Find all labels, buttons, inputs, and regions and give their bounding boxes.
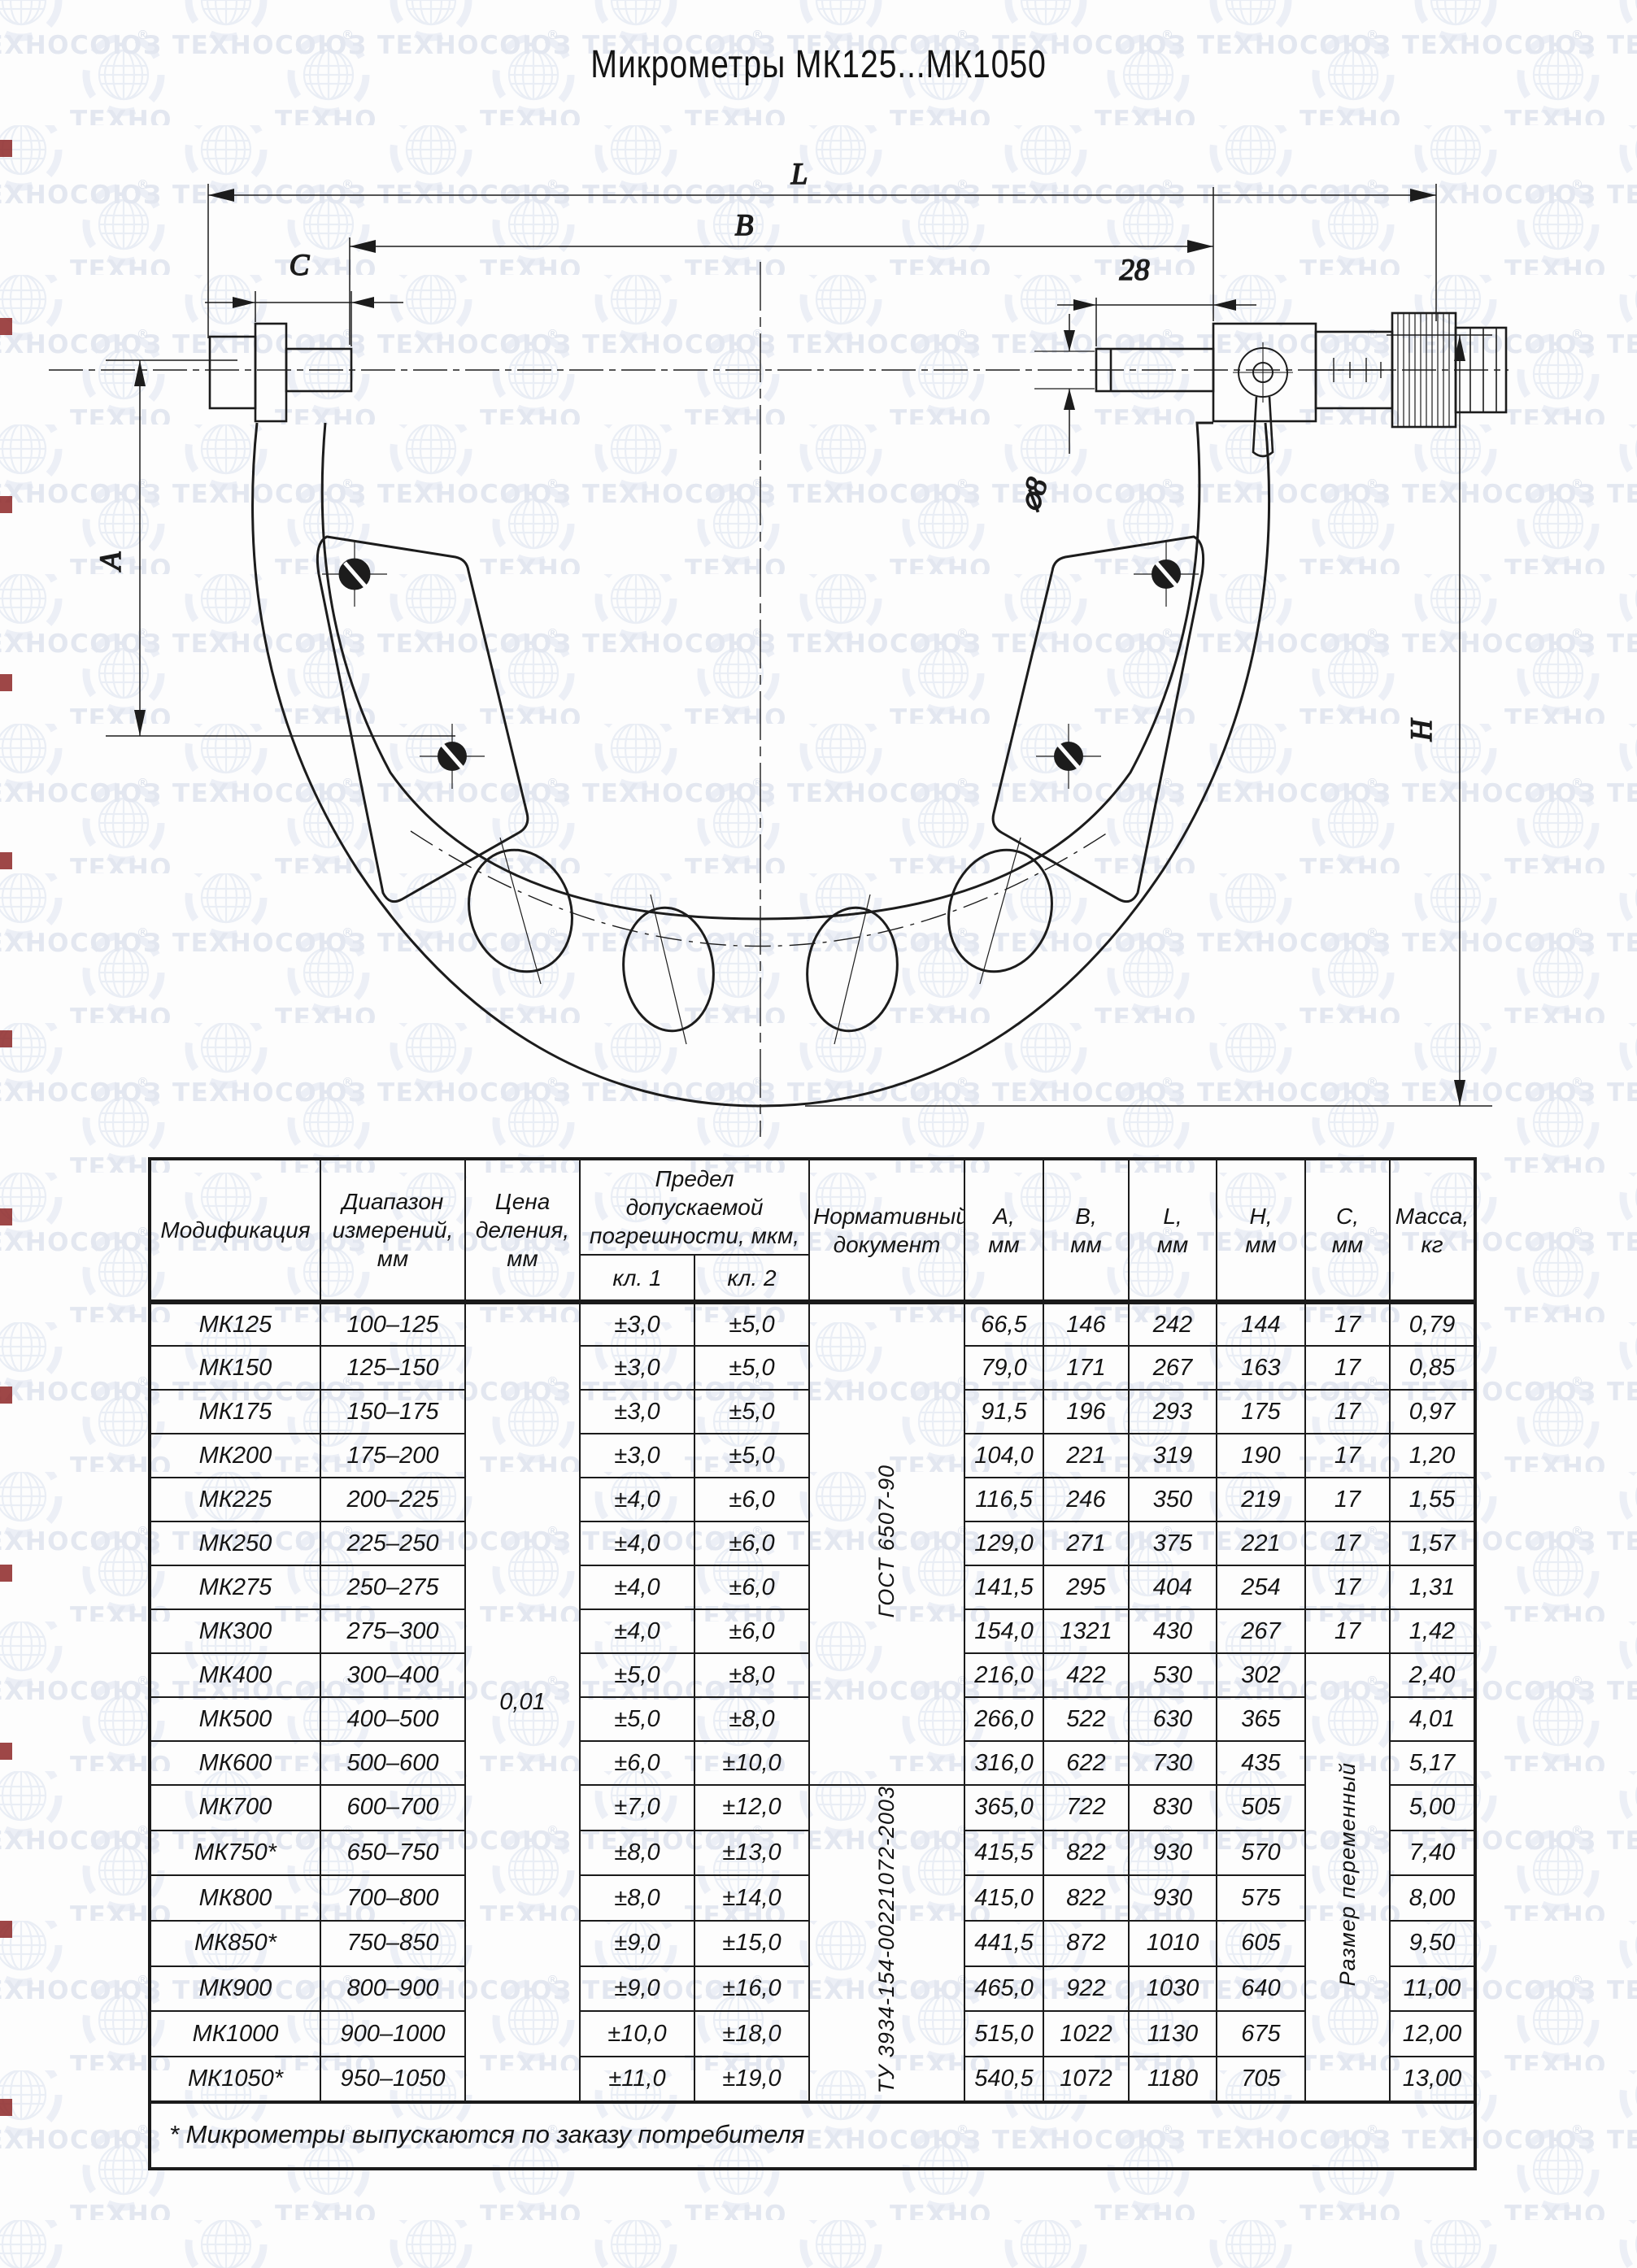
table-cell: 800–900 xyxy=(320,1966,465,2012)
table-cell: ±3,0 xyxy=(580,1390,694,1434)
table-cell: 622 xyxy=(1043,1741,1129,1785)
table-cell: 316,0 xyxy=(964,1741,1043,1785)
table-cell: 435 xyxy=(1217,1741,1305,1785)
table-cell: 219 xyxy=(1217,1478,1305,1521)
table-cell: МК1050* xyxy=(150,2057,320,2102)
table-cell: 822 xyxy=(1043,1875,1129,1921)
table-cell: МК200 xyxy=(150,1434,320,1478)
table-cell: 1022 xyxy=(1043,2011,1129,2057)
table-cell: 1,20 xyxy=(1390,1434,1475,1478)
edge-mark xyxy=(0,1921,12,1938)
table-cell: ±15,0 xyxy=(694,1921,809,1966)
table-cell: 5,00 xyxy=(1390,1785,1475,1831)
table-cell: 930 xyxy=(1129,1831,1217,1876)
table-cell: 0,79 xyxy=(1390,1302,1475,1346)
c-variable-text: Размер переменный xyxy=(1335,1762,1361,1986)
table-cell: 17 xyxy=(1305,1302,1390,1346)
svg-text:L: L xyxy=(790,158,808,191)
table-cell: ±4,0 xyxy=(580,1609,694,1653)
table-cell: МК1000 xyxy=(150,2011,320,2057)
table-cell: 66,5 xyxy=(964,1302,1043,1346)
table-cell: 267 xyxy=(1217,1609,1305,1653)
table-cell: ±6,0 xyxy=(694,1478,809,1521)
table-cell: 1,55 xyxy=(1390,1478,1475,1521)
table-cell: 0,97 xyxy=(1390,1390,1475,1434)
col-header-norm-doc: Нормативный документ xyxy=(809,1159,964,1302)
table-cell: 730 xyxy=(1129,1741,1217,1785)
col-header-a: А, мм xyxy=(964,1159,1043,1302)
svg-text:⌀8: ⌀8 xyxy=(1012,473,1055,516)
table-cell: ±4,0 xyxy=(580,1565,694,1609)
table-cell: ±14,0 xyxy=(694,1875,809,1921)
table-cell: 302 xyxy=(1217,1653,1305,1697)
table-cell: 465,0 xyxy=(964,1966,1043,2012)
table-cell: МК225 xyxy=(150,1478,320,1521)
table-cell: 242 xyxy=(1129,1302,1217,1346)
table-cell: 91,5 xyxy=(964,1390,1043,1434)
table-cell: ±4,0 xyxy=(580,1478,694,1521)
table-cell: 1,42 xyxy=(1390,1609,1475,1653)
col-header-cl1: кл. 1 xyxy=(580,1255,694,1302)
table-cell: 1010 xyxy=(1129,1921,1217,1966)
dimension-dia8: ⌀8 xyxy=(1012,314,1095,516)
table-cell: 295 xyxy=(1043,1565,1129,1609)
edge-mark xyxy=(0,1565,12,1582)
table-cell: 515,0 xyxy=(964,2011,1043,2057)
table-cell: 950–1050 xyxy=(320,2057,465,2102)
svg-text:28: 28 xyxy=(1120,254,1151,287)
svg-text:A: A xyxy=(94,551,128,572)
table-cell: 522 xyxy=(1043,1697,1129,1741)
dimension-28: 28 xyxy=(1057,254,1256,346)
table-cell: ±6,0 xyxy=(694,1609,809,1653)
table-cell: 1,57 xyxy=(1390,1521,1475,1565)
table-cell: 13,00 xyxy=(1390,2057,1475,2102)
insulating-plate-left xyxy=(317,537,528,902)
col-header-mass: Масса, кг xyxy=(1390,1159,1475,1302)
table-cell: 830 xyxy=(1129,1785,1217,1831)
table-cell: 540,5 xyxy=(964,2057,1043,2102)
table-cell: 200–225 xyxy=(320,1478,465,1521)
table-cell: 246 xyxy=(1043,1478,1129,1521)
col-header-b: В, мм xyxy=(1043,1159,1129,1302)
table-cell: 900–1000 xyxy=(320,2011,465,2057)
table-cell: 221 xyxy=(1217,1521,1305,1565)
table-cell: 575 xyxy=(1217,1875,1305,1921)
table-header: Модификация Диапазон измерений, мм Цена … xyxy=(150,1159,1475,1302)
table-cell: 17 xyxy=(1305,1346,1390,1390)
table-cell: 300–400 xyxy=(320,1653,465,1697)
centerlines xyxy=(49,262,1509,1137)
table-cell: 254 xyxy=(1217,1565,1305,1609)
table-cell: 146 xyxy=(1043,1302,1129,1346)
table-cell: 196 xyxy=(1043,1390,1129,1434)
table-cell: 225–250 xyxy=(320,1521,465,1565)
c-variable-cell: Размер переменный xyxy=(1305,1653,1390,2102)
edge-mark xyxy=(0,140,12,157)
table-cell: 430 xyxy=(1129,1609,1217,1653)
edge-mark xyxy=(0,1208,12,1225)
table-cell: 600–700 xyxy=(320,1785,465,1831)
table-cell: 415,5 xyxy=(964,1831,1043,1876)
dimension-H: Н xyxy=(805,335,1492,1106)
table-cell: 1321 xyxy=(1043,1609,1129,1653)
table-cell: 79,0 xyxy=(964,1346,1043,1390)
table-cell: 221 xyxy=(1043,1434,1129,1478)
table-cell: 705 xyxy=(1217,2057,1305,2102)
table-cell: 640 xyxy=(1217,1966,1305,2012)
table-cell: 422 xyxy=(1043,1653,1129,1697)
table-cell: 365 xyxy=(1217,1697,1305,1741)
table-cell: 365,0 xyxy=(964,1785,1043,1831)
table-cell: 144 xyxy=(1217,1302,1305,1346)
table-cell: ±3,0 xyxy=(580,1434,694,1478)
table-cell: 5,17 xyxy=(1390,1741,1475,1785)
table-cell: ±5,0 xyxy=(580,1653,694,1697)
table-cell: ±5,0 xyxy=(694,1434,809,1478)
table-cell: 275–300 xyxy=(320,1609,465,1653)
table-cell: 141,5 xyxy=(964,1565,1043,1609)
micrometer-drawing: L B C 28 xyxy=(0,89,1637,1155)
table-cell: ±12,0 xyxy=(694,1785,809,1831)
table-cell: 375 xyxy=(1129,1521,1217,1565)
table-cell: ±6,0 xyxy=(694,1565,809,1609)
table-cell: ±4,0 xyxy=(580,1521,694,1565)
table-cell: 2,40 xyxy=(1390,1653,1475,1697)
edge-mark xyxy=(0,1386,12,1404)
table-cell: ±11,0 xyxy=(580,2057,694,2102)
table-cell: ±6,0 xyxy=(580,1741,694,1785)
table-cell: 750–850 xyxy=(320,1921,465,1966)
table-cell: 700–800 xyxy=(320,1875,465,1921)
edge-mark xyxy=(0,496,12,513)
svg-text:B: B xyxy=(735,209,754,242)
table-cell: 116,5 xyxy=(964,1478,1043,1521)
table-cell: 1072 xyxy=(1043,2057,1129,2102)
table-cell: ±10,0 xyxy=(580,2011,694,2057)
table-cell: МК750* xyxy=(150,1831,320,1876)
table-cell: 17 xyxy=(1305,1478,1390,1521)
table-cell: МК800 xyxy=(150,1875,320,1921)
dimension-C: C xyxy=(205,249,403,346)
table-cell: ±9,0 xyxy=(580,1966,694,2012)
table-cell: 171 xyxy=(1043,1346,1129,1390)
table-cell: ±5,0 xyxy=(694,1346,809,1390)
table-cell: ±3,0 xyxy=(580,1302,694,1346)
table-cell: 722 xyxy=(1043,1785,1129,1831)
spec-table: Модификация Диапазон измерений, мм Цена … xyxy=(148,1157,1477,2170)
table-cell: МК500 xyxy=(150,1697,320,1741)
table-cell: 11,00 xyxy=(1390,1966,1475,2012)
table-cell: ±5,0 xyxy=(580,1697,694,1741)
table-cell: 0,01 xyxy=(465,1302,580,2102)
table-cell: ±9,0 xyxy=(580,1921,694,1966)
table-cell: МК850* xyxy=(150,1921,320,1966)
table-cell: 175 xyxy=(1217,1390,1305,1434)
table-cell: 12,00 xyxy=(1390,2011,1475,2057)
table-cell: 17 xyxy=(1305,1434,1390,1478)
table-cell: ±10,0 xyxy=(694,1741,809,1785)
table-cell: 266,0 xyxy=(964,1697,1043,1741)
table-cell: 7,40 xyxy=(1390,1831,1475,1876)
table-cell: МК175 xyxy=(150,1390,320,1434)
footnote-row: * Микрометры выпускаются по заказу потре… xyxy=(150,2102,1475,2169)
table-row: МК700600–700±7,0±12,0ТУ 3934-154-0022107… xyxy=(150,1785,1475,1831)
table-cell: 4,01 xyxy=(1390,1697,1475,1741)
edge-mark xyxy=(0,1743,12,1760)
table-cell: 404 xyxy=(1129,1565,1217,1609)
table-cell: ±8,0 xyxy=(694,1653,809,1697)
table-cell: 872 xyxy=(1043,1921,1129,1966)
table-cell: МК400 xyxy=(150,1653,320,1697)
table-cell: ±8,0 xyxy=(580,1831,694,1876)
table-cell: 100–125 xyxy=(320,1302,465,1346)
table-cell: МК250 xyxy=(150,1521,320,1565)
table-cell: 190 xyxy=(1217,1434,1305,1478)
table-cell: 570 xyxy=(1217,1831,1305,1876)
table-cell: 175–200 xyxy=(320,1434,465,1478)
table-cell: МК275 xyxy=(150,1565,320,1609)
edge-mark xyxy=(0,2099,12,2116)
table-cell: ±8,0 xyxy=(694,1697,809,1741)
col-header-error-limit: Предел допускаемой погрешности, мкм, xyxy=(580,1159,809,1255)
table-cell: МК125 xyxy=(150,1302,320,1346)
table-cell: 530 xyxy=(1129,1653,1217,1697)
table-row: МК125100–1250,01±3,0±5,0ГОСТ 6507-9066,5… xyxy=(150,1302,1475,1346)
table-cell: ±16,0 xyxy=(694,1966,809,2012)
table-cell: 630 xyxy=(1129,1697,1217,1741)
table-cell: 17 xyxy=(1305,1609,1390,1653)
table-cell: 500–600 xyxy=(320,1741,465,1785)
table-cell: ±19,0 xyxy=(694,2057,809,2102)
table-cell: ±13,0 xyxy=(694,1831,809,1876)
table-body: МК125100–1250,01±3,0±5,0ГОСТ 6507-9066,5… xyxy=(150,1302,1475,2102)
col-header-cl2: кл. 2 xyxy=(694,1255,809,1302)
edge-mark xyxy=(0,318,12,335)
table-cell: 319 xyxy=(1129,1434,1217,1478)
table-cell: 154,0 xyxy=(964,1609,1043,1653)
dimension-B: B xyxy=(350,187,1213,345)
table-cell: 1,31 xyxy=(1390,1565,1475,1609)
table-cell: 1030 xyxy=(1129,1966,1217,2012)
table-cell: 9,50 xyxy=(1390,1921,1475,1966)
table-cell: 271 xyxy=(1043,1521,1129,1565)
table-cell: 8,00 xyxy=(1390,1875,1475,1921)
table-cell: МК600 xyxy=(150,1741,320,1785)
norm-doc-text: ГОСТ 6507-90 xyxy=(874,1465,899,1617)
footnote: * Микрометры выпускаются по заказу потре… xyxy=(150,2102,1475,2169)
table-cell: 17 xyxy=(1305,1521,1390,1565)
norm-doc-cell: ГОСТ 6507-90 xyxy=(809,1302,964,1785)
col-header-h: Н, мм xyxy=(1217,1159,1305,1302)
insulating-plate-right xyxy=(993,537,1204,902)
table-cell: 17 xyxy=(1305,1565,1390,1609)
table-cell: 0,85 xyxy=(1390,1346,1475,1390)
table-cell: ±5,0 xyxy=(694,1302,809,1346)
table-cell: 150–175 xyxy=(320,1390,465,1434)
dimension-L: L xyxy=(208,158,1436,338)
table-cell: ±8,0 xyxy=(580,1875,694,1921)
table-cell: 415,0 xyxy=(964,1875,1043,1921)
col-header-l: L, мм xyxy=(1129,1159,1217,1302)
table-cell: 125–150 xyxy=(320,1346,465,1390)
table-cell: 922 xyxy=(1043,1966,1129,2012)
table-cell: 1180 xyxy=(1129,2057,1217,2102)
edge-mark xyxy=(0,852,12,869)
table-cell: 129,0 xyxy=(964,1521,1043,1565)
table-cell: МК900 xyxy=(150,1966,320,2012)
table-cell: 605 xyxy=(1217,1921,1305,1966)
table-cell: 216,0 xyxy=(964,1653,1043,1697)
table-cell: 441,5 xyxy=(964,1921,1043,1966)
table-cell: МК300 xyxy=(150,1609,320,1653)
table-cell: ±5,0 xyxy=(694,1390,809,1434)
col-header-division: Цена деления, мм xyxy=(465,1159,580,1302)
page-title: Микрометры МК125...МК1050 xyxy=(147,42,1490,87)
table-cell: 163 xyxy=(1217,1346,1305,1390)
edge-mark xyxy=(0,674,12,691)
table-cell: ±6,0 xyxy=(694,1521,809,1565)
col-header-c: С, мм xyxy=(1305,1159,1390,1302)
norm-doc-cell: ТУ 3934-154-00221072-2003 xyxy=(809,1785,964,2102)
anvil xyxy=(210,324,351,421)
col-header-modification: Модификация xyxy=(150,1159,320,1302)
table-cell: 505 xyxy=(1217,1785,1305,1831)
svg-text:C: C xyxy=(290,249,311,282)
svg-text:Н: Н xyxy=(1405,717,1439,742)
table-cell: МК150 xyxy=(150,1346,320,1390)
edge-mark xyxy=(0,1030,12,1047)
table-cell: 250–275 xyxy=(320,1565,465,1609)
table-cell: 930 xyxy=(1129,1875,1217,1921)
norm-doc-text: ТУ 3934-154-00221072-2003 xyxy=(874,1786,899,2094)
table-cell: 350 xyxy=(1129,1478,1217,1521)
table-cell: 822 xyxy=(1043,1831,1129,1876)
table-cell: 104,0 xyxy=(964,1434,1043,1478)
table-cell: 17 xyxy=(1305,1390,1390,1434)
table-cell: 650–750 xyxy=(320,1831,465,1876)
table-cell: ±7,0 xyxy=(580,1785,694,1831)
table-cell: 1130 xyxy=(1129,2011,1217,2057)
table-cell: 267 xyxy=(1129,1346,1217,1390)
table-cell: 400–500 xyxy=(320,1697,465,1741)
col-header-range: Диапазон измерений, мм xyxy=(320,1159,465,1302)
table-cell: МК700 xyxy=(150,1785,320,1831)
table-cell: 675 xyxy=(1217,2011,1305,2057)
table-cell: 293 xyxy=(1129,1390,1217,1434)
table-cell: ±3,0 xyxy=(580,1346,694,1390)
table-cell: ±18,0 xyxy=(694,2011,809,2057)
page: ТЕХНОСОЮЗ ® ТЕХНОСОЮЗ Микрометры МК125..… xyxy=(0,0,1637,2268)
